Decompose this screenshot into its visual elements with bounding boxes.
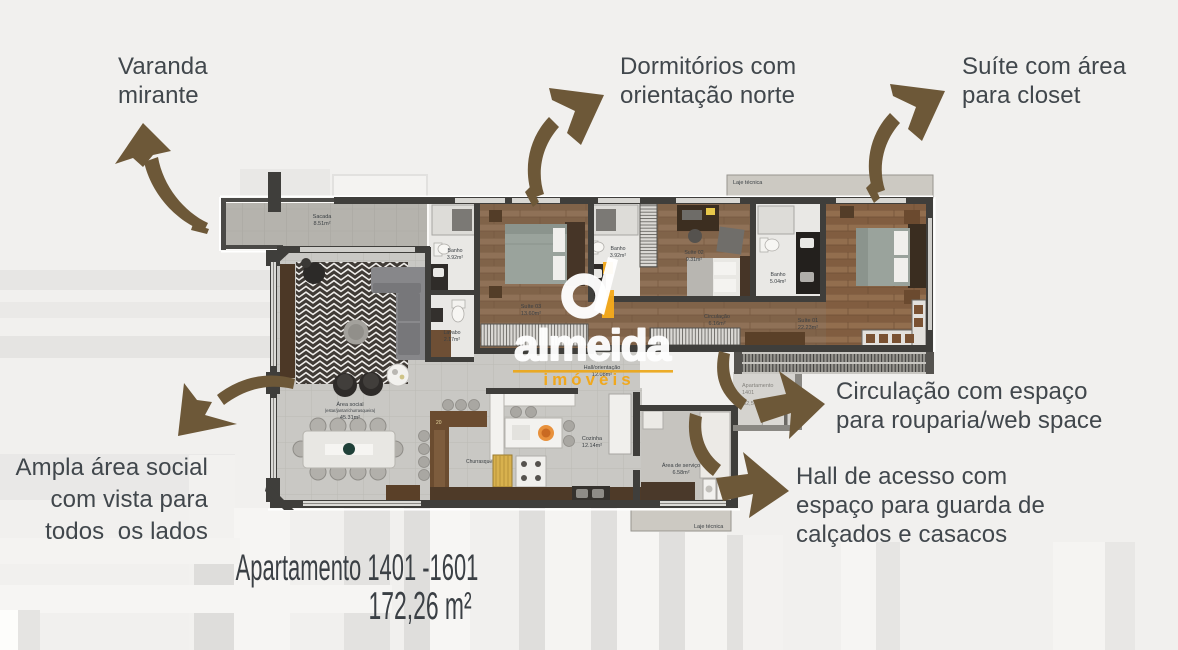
svg-text:almeida: almeida: [514, 321, 671, 370]
svg-text:20: 20: [436, 420, 442, 426]
svg-text:Laje técnica: Laje técnica: [694, 524, 724, 530]
svg-text:Área de serviço: Área de serviço: [662, 462, 700, 469]
svg-text:1401: 1401: [742, 390, 754, 396]
svg-text:Suíte 02: Suíte 02: [684, 250, 703, 256]
svg-text:6.16m²: 6.16m²: [708, 321, 725, 327]
svg-text:Circulação: Circulação: [704, 314, 730, 320]
svg-text:Apartamento: Apartamento: [742, 383, 774, 389]
svg-text:13.60m²: 13.60m²: [521, 311, 541, 317]
svg-text:3.92m²: 3.92m²: [610, 253, 626, 259]
svg-text:8.51m²: 8.51m²: [313, 221, 330, 227]
svg-text:Lavabo: Lavabo: [443, 330, 460, 336]
svg-text:Suíte 01: Suíte 01: [798, 318, 819, 324]
svg-text:22.23m²: 22.23m²: [798, 325, 818, 331]
svg-text:3.92m²: 3.92m²: [447, 255, 463, 261]
svg-text:9.31m²: 9.31m²: [686, 257, 702, 263]
svg-text:Banho: Banho: [447, 248, 462, 254]
svg-text:Banho: Banho: [770, 272, 785, 278]
svg-text:imóveis: imóveis: [543, 370, 634, 389]
svg-text:(estar/jantar/churrasqueira): (estar/jantar/churrasqueira): [325, 408, 376, 413]
svg-text:2.17m²: 2.17m²: [444, 337, 460, 343]
svg-text:Sacada: Sacada: [313, 214, 333, 220]
svg-text:Banho: Banho: [610, 246, 625, 252]
svg-text:5.04m²: 5.04m²: [770, 279, 786, 285]
svg-text:6.58m²: 6.58m²: [672, 470, 689, 476]
svg-text:Laje técnica: Laje técnica: [733, 180, 763, 186]
svg-text:45.31m²: 45.31m²: [340, 415, 360, 421]
svg-text:12.14m²: 12.14m²: [582, 443, 602, 449]
svg-text:Cozinha: Cozinha: [582, 436, 603, 442]
svg-text:Área social: Área social: [336, 401, 363, 408]
svg-text:Suíte 03: Suíte 03: [521, 304, 542, 310]
